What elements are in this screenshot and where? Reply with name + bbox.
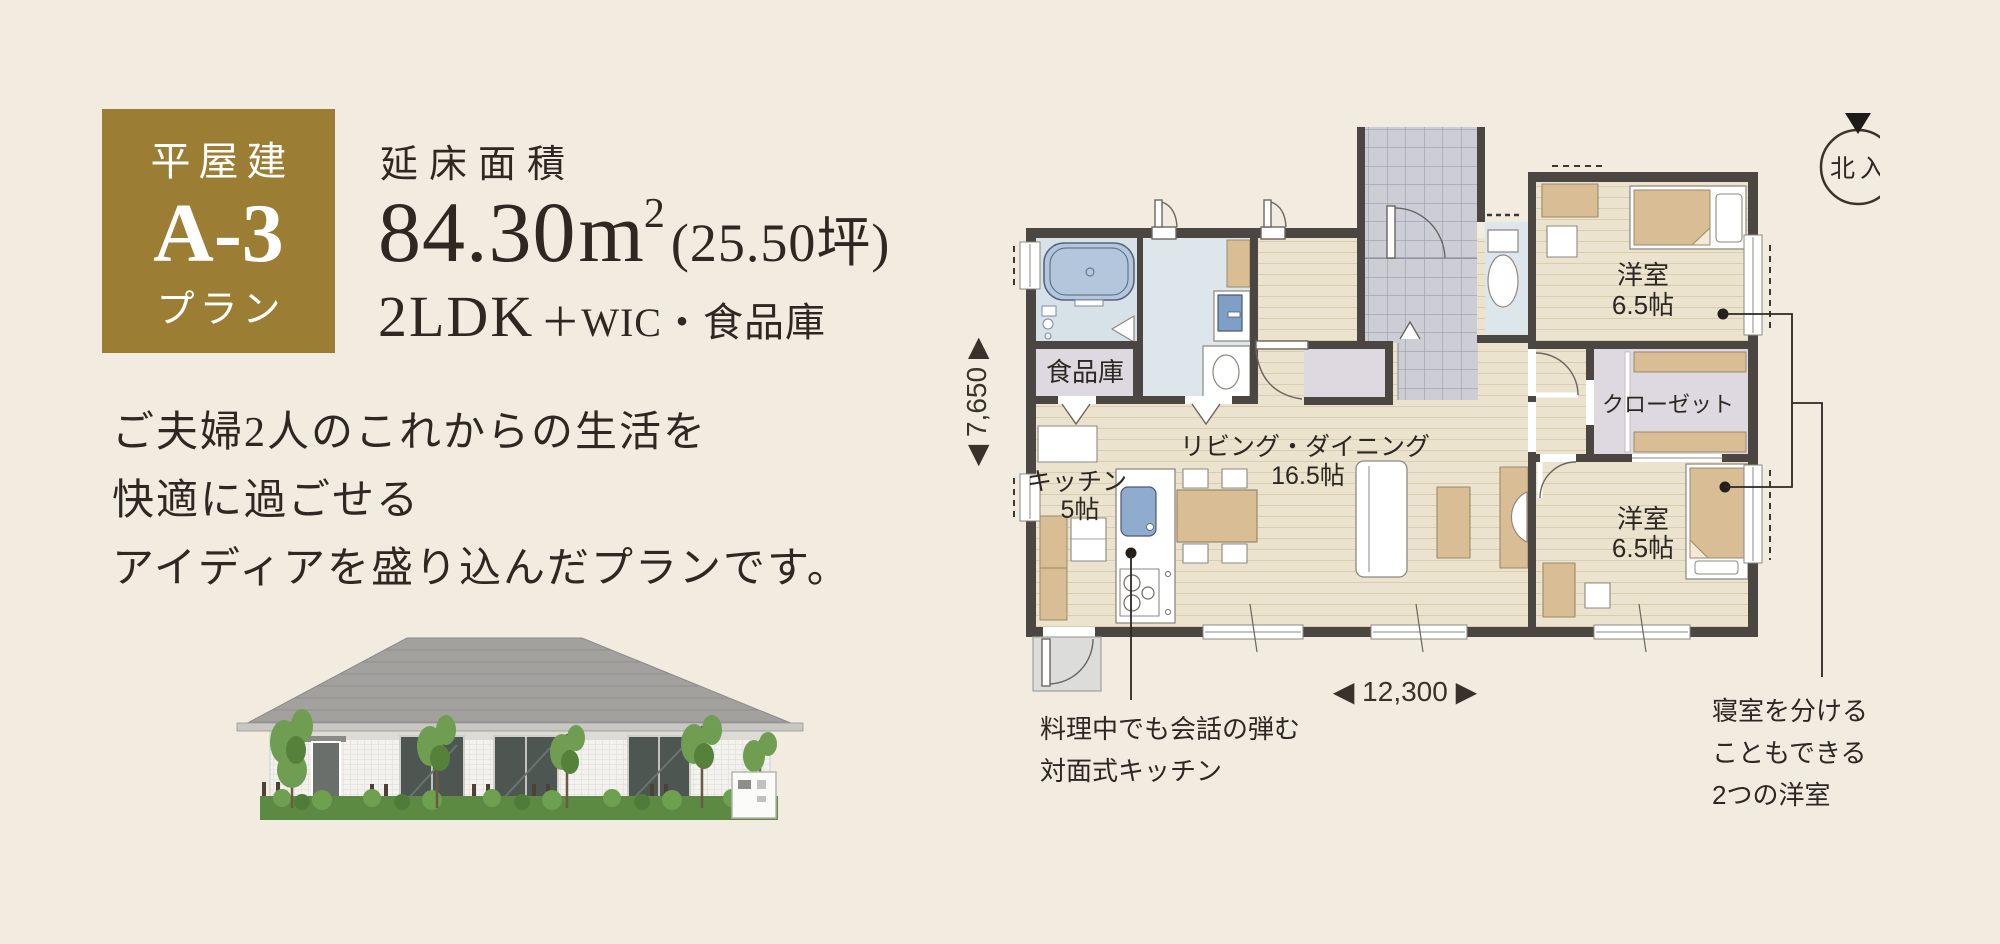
- plan-badge: 平屋建 A-3 プラン: [102, 109, 335, 353]
- washing-machine-icon: [1203, 346, 1250, 398]
- bedroom2-label: 洋室: [1617, 504, 1669, 534]
- dresser-icon: [1542, 184, 1598, 217]
- floor-plan: 食品庫 キッチン 5帖 リビング・ダイニング 16.5帖 洋室 6.5帖 クロー…: [960, 95, 1880, 860]
- floor-area-tsubo: (25.50坪): [671, 198, 890, 277]
- bedroom2-size-label: 6.5帖: [1612, 533, 1674, 563]
- description-line-2: 快適に過ごせる: [112, 467, 851, 535]
- north-entry-compass: 北入: [1821, 113, 1880, 204]
- bedroom-callout-line2: こともできる: [1712, 738, 1866, 768]
- house-roof: [232, 638, 812, 731]
- side-table-icon: [1585, 583, 1610, 608]
- washroom-shelf: [1227, 240, 1250, 287]
- layout-line: 2LDK ＋WIC・食品庫: [378, 283, 826, 350]
- dimension-vertical: ◀ 7,650 ▶: [961, 337, 992, 466]
- callout-texts: 料理中でも会話の弾む 対面式キッチン 寝室を分ける こともできる 2つの洋室: [1040, 696, 1868, 810]
- bedroom1-size-label: 6.5帖: [1612, 290, 1674, 320]
- bed-icon-bedroom2: [1686, 464, 1748, 579]
- coffee-table-icon: [1437, 487, 1470, 558]
- entry-tile: [1365, 127, 1477, 343]
- description-line-1: ご夫婦2人のこれからの生活を: [112, 399, 851, 467]
- layout-extra: ＋WIC・食品庫: [540, 290, 826, 348]
- sofa-icon: [1356, 461, 1407, 577]
- entry-step-tile: [1398, 343, 1478, 400]
- back-door-porch: [1033, 637, 1101, 691]
- kitchen-callout-line2: 対面式キッチン: [1040, 756, 1222, 786]
- refrigerator-icon: [1071, 518, 1106, 561]
- bed-icon-bedroom1: [1630, 186, 1746, 249]
- vanity-sink-icon: [1214, 291, 1250, 341]
- badge-building-type: 平屋建: [143, 129, 295, 187]
- bathtub-icon: [1044, 243, 1134, 306]
- closet-label: クローゼット: [1602, 392, 1734, 417]
- kitchen-label: キッチン: [1027, 468, 1127, 496]
- kitchen-cabinet: [1038, 426, 1097, 462]
- exterior-door-2: [1261, 200, 1286, 239]
- badge-plan-suffix: プラン: [151, 278, 285, 333]
- compass-label: 北入: [1830, 155, 1880, 183]
- bedroom1-label: 洋室: [1617, 260, 1669, 290]
- exterior-door-1: [1152, 200, 1177, 239]
- floor-area-value: 84.30: [378, 182, 577, 282]
- kitchen-callout-line1: 料理中でも会話の弾む: [1040, 714, 1300, 744]
- layout-type: 2LDK: [378, 283, 534, 350]
- nightstand-icon: [1547, 226, 1577, 257]
- dimension-horizontal: ◀ 12,300 ▶: [1333, 676, 1478, 707]
- floor-area-label: 延床面積: [380, 133, 576, 188]
- kitchen-size-label: 5帖: [1061, 496, 1100, 524]
- brochure-page: 平屋建 A-3 プラン 延床面積 84.30m2(25.50坪) 2LDK ＋W…: [0, 0, 2000, 944]
- badge-plan-code: A-3: [153, 191, 284, 277]
- living-dining-size-label: 16.5帖: [1271, 462, 1345, 490]
- bedroom-callout-line1: 寝室を分ける: [1712, 696, 1868, 726]
- bedroom-callout-line3: 2つの洋室: [1712, 780, 1830, 810]
- floor-area-unit-exponent: 2: [644, 190, 665, 238]
- pantry-label: 食品庫: [1046, 357, 1124, 387]
- chest-icon: [1543, 563, 1575, 617]
- living-dining-label: リビング・ダイニング: [1180, 433, 1430, 461]
- storage-floor: [1304, 349, 1385, 397]
- mailbox-unit: [732, 772, 776, 818]
- house-exterior-image: [232, 630, 812, 835]
- floor-area-value-line: 84.30m2(25.50坪): [378, 182, 890, 282]
- tv-board-icon: [1500, 467, 1528, 568]
- description-line-3: アイディアを盛り込んだプランです。: [112, 535, 851, 603]
- plan-description: ご夫婦2人のこれからの生活を 快適に過ごせる アイディアを盛り込んだプランです。: [112, 399, 851, 603]
- floor-area-unit: m: [579, 185, 644, 282]
